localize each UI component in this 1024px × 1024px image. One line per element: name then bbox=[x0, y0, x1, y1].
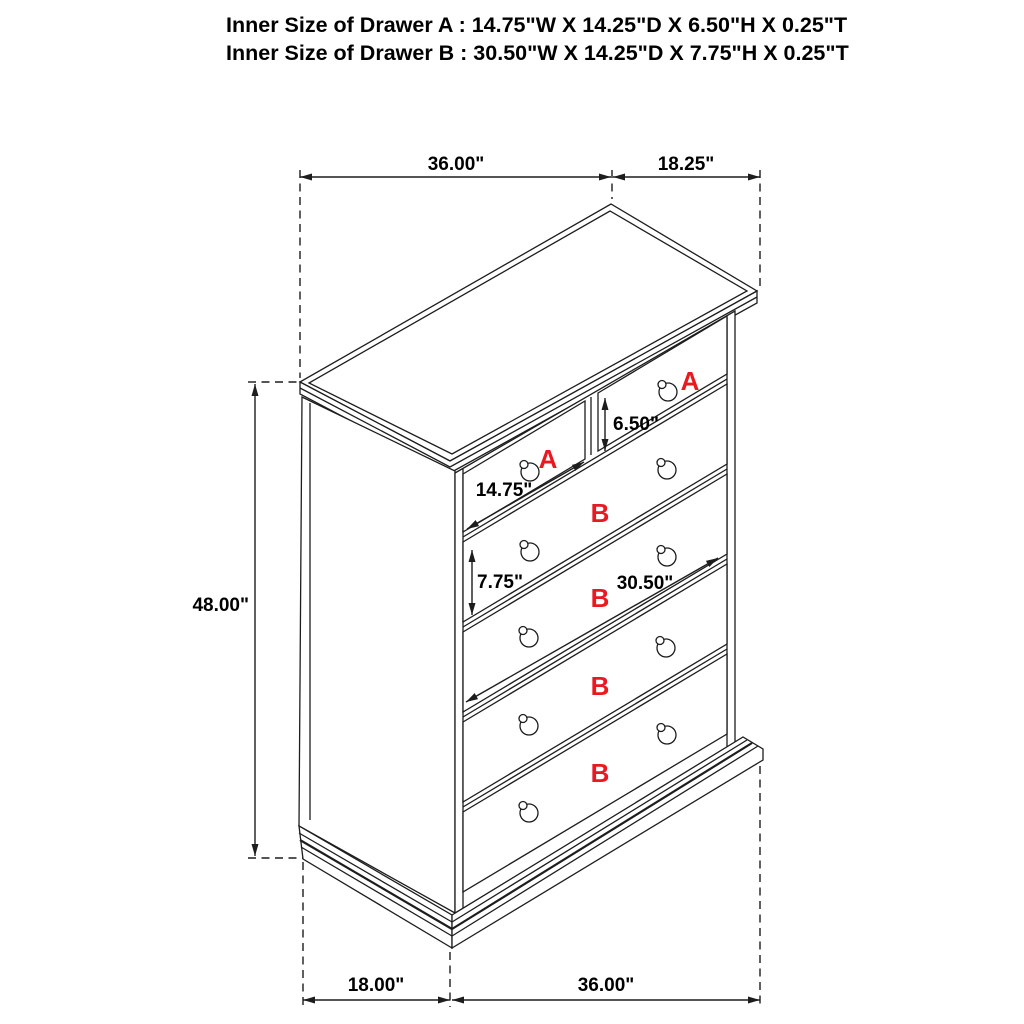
label-base-depth: 18.00" bbox=[348, 975, 405, 996]
label-drawer-a-width: 14.75" bbox=[476, 480, 533, 501]
label-drawer-a-right: A bbox=[681, 366, 700, 396]
label-overall-height: 48.00" bbox=[192, 595, 249, 616]
label-drawer-b-height: 7.75" bbox=[477, 572, 523, 593]
title-drawer-b-size: Inner Size of Drawer B : 30.50"W X 14.25… bbox=[226, 41, 849, 65]
label-drawer-b2: B bbox=[591, 583, 610, 613]
label-top-depth: 18.25" bbox=[658, 154, 715, 175]
label-drawer-a-left: A bbox=[539, 444, 558, 474]
label-base-width: 36.00" bbox=[578, 975, 635, 996]
chest-left-side-panel bbox=[299, 397, 455, 913]
label-drawer-b3: B bbox=[591, 671, 610, 701]
chest-drawing bbox=[299, 204, 763, 948]
label-drawer-b1: B bbox=[591, 498, 610, 528]
label-drawer-b-width: 30.50" bbox=[617, 573, 674, 594]
dimension-diagram: Inner Size of Drawer A : 14.75"W X 14.25… bbox=[0, 0, 1024, 1024]
label-drawer-b4: B bbox=[591, 758, 610, 788]
chest-line-drawing: Inner Size of Drawer A : 14.75"W X 14.25… bbox=[0, 0, 1024, 1024]
label-drawer-a-height: 6.50" bbox=[613, 414, 659, 435]
label-top-width: 36.00" bbox=[428, 154, 485, 175]
title-drawer-a-size: Inner Size of Drawer A : 14.75"W X 14.25… bbox=[226, 13, 847, 37]
